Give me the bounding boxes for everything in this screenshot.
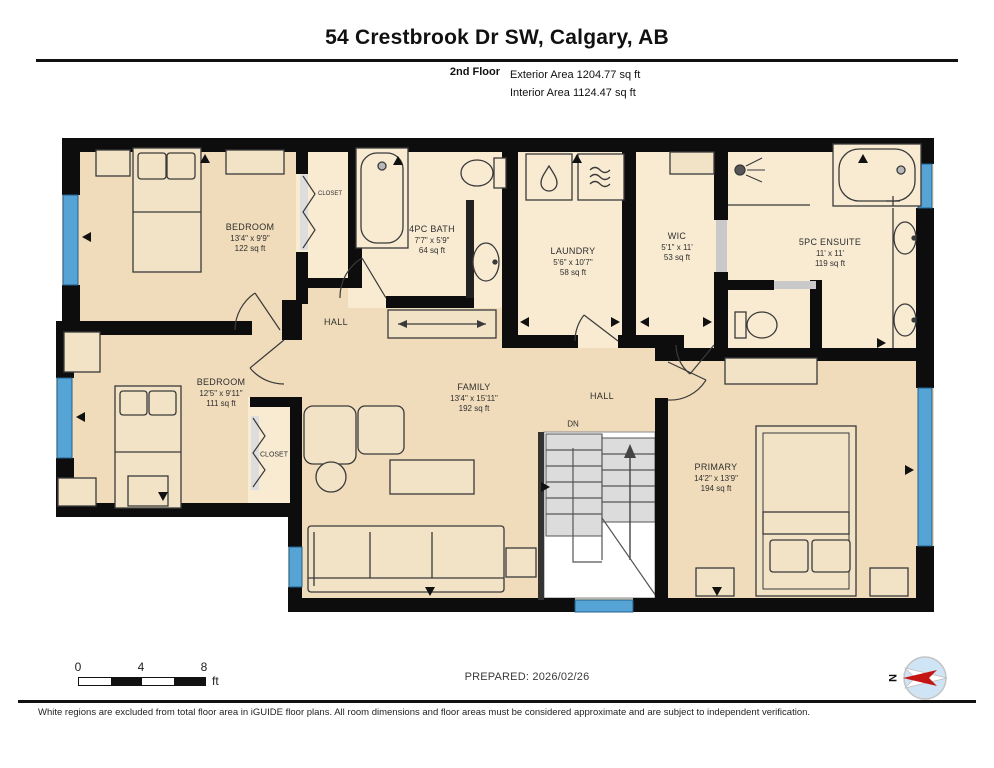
room-label-primary: PRIMARY 14'2" x 13'9" 194 sq ft xyxy=(694,462,738,494)
scale-unit: ft xyxy=(212,674,219,688)
scale-tick-0: 0 xyxy=(75,660,82,674)
prepared-date: PREPARED: 2026/02/26 xyxy=(465,671,590,683)
footer-divider xyxy=(18,700,976,703)
scale-tick-4: 4 xyxy=(138,660,145,674)
room-label-bedroom-left: BEDROOM 12'5" x 9'11" 111 sq ft xyxy=(197,377,246,409)
shower-head-icon xyxy=(735,165,745,175)
room-label-laundry: LAUNDRY 5'6" x 10'7" 58 sq ft xyxy=(551,246,596,278)
scale-tick-8: 8 xyxy=(201,660,208,674)
room-label-ensuite: 5PC ENSUITE 11' x 11' 119 sq ft xyxy=(799,237,861,269)
hall-lower-label: HALL xyxy=(590,391,614,401)
room-label-bath: 4PC BATH 7'7" x 5'9" 64 sq ft xyxy=(409,224,455,256)
floorplan-page: 54 Crestbrook Dr SW, Calgary, AB 2nd Flo… xyxy=(0,0,994,768)
room-label-family: FAMILY 13'4" x 15'11" 192 sq ft xyxy=(450,382,498,414)
disclaimer-text: White regions are excluded from total fl… xyxy=(38,707,810,718)
stairs-down-label: DN xyxy=(567,420,579,429)
closet-lower-label: CLOSET xyxy=(260,452,288,459)
hall-upper-label: HALL xyxy=(324,317,348,327)
scale-bar-segments xyxy=(78,677,206,686)
north-compass-icon: N xyxy=(886,657,947,699)
fixtures-wic xyxy=(670,152,714,174)
stairs xyxy=(544,432,656,598)
compass-north-label: N xyxy=(886,674,898,682)
closet-upper-label: CLOSET xyxy=(318,191,342,197)
room-label-bedroom-top: BEDROOM 13'4" x 9'9" 122 sq ft xyxy=(226,222,275,254)
room-label-wic: WIC 5'1" x 11' 53 sq ft xyxy=(661,231,693,263)
scale-bar: 0 4 8 ft xyxy=(60,660,230,692)
